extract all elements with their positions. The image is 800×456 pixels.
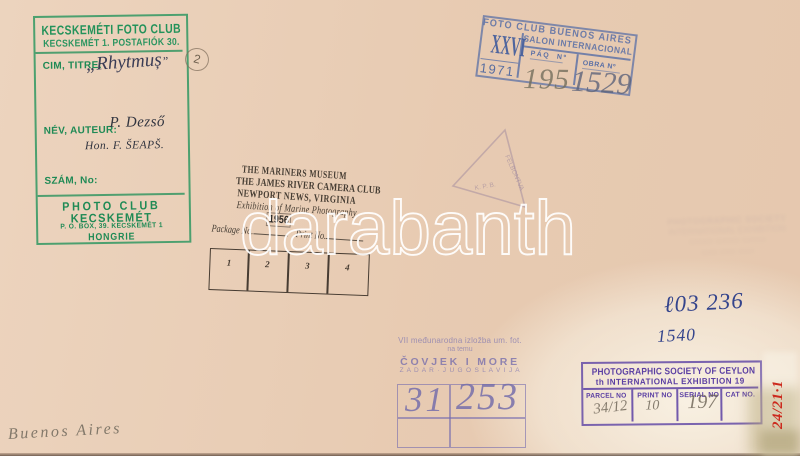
svg-text:darabanth: darabanth [240, 186, 576, 271]
